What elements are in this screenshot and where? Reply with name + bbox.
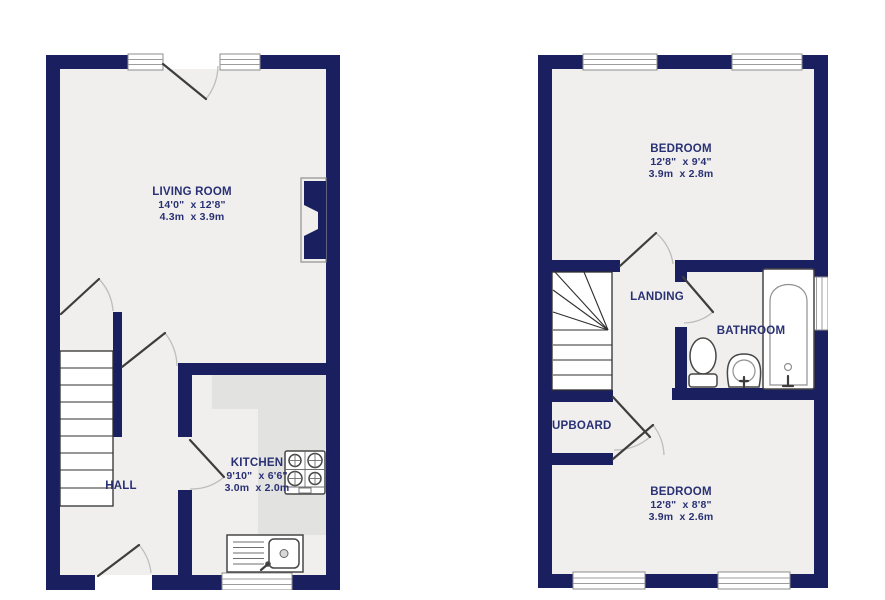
room-name: HALL <box>91 480 151 493</box>
cupboard-label: UPBOARD <box>552 420 662 433</box>
room-name: LIVING ROOM <box>107 186 277 199</box>
room-size-metric: 4.3m x 3.9m <box>107 211 277 223</box>
window <box>220 54 260 70</box>
living-room-label: LIVING ROOM 14'0" x 12'8" 4.3m x 3.9m <box>107 186 277 223</box>
bedroom-back-label: BEDROOM 12'8" x 8'8" 3.9m x 2.6m <box>596 486 766 523</box>
kitchen-sink <box>227 535 303 572</box>
window <box>732 54 802 70</box>
landing-label: LANDING <box>597 291 717 304</box>
room-name: BATHROOM <box>691 325 811 338</box>
window <box>128 54 163 70</box>
room-size-imperial: 12'8" x 9'4" <box>596 156 766 168</box>
room-name: KITCHEN <box>182 457 332 470</box>
room-name: UPBOARD <box>552 420 662 433</box>
first-floor-plan: BEDROOM 12'8" x 9'4" 3.9m x 2.8m LANDING… <box>538 50 828 590</box>
window <box>222 573 292 590</box>
room-size-imperial: 12'8" x 8'8" <box>596 499 766 511</box>
ground-floor-drawing <box>45 50 340 590</box>
bedroom-front-label: BEDROOM 12'8" x 9'4" 3.9m x 2.8m <box>596 143 766 180</box>
room-name: BEDROOM <box>596 143 766 156</box>
room-size-imperial: 14'0" x 12'8" <box>107 199 277 211</box>
kitchen-label: KITCHEN 9'10" x 6'6" 3.0m x 2.0m <box>182 457 332 494</box>
ground-floor-plan: LIVING ROOM 14'0" x 12'8" 4.3m x 3.9m KI… <box>45 50 340 590</box>
window <box>718 572 790 589</box>
floorplan-page: { "theme": { "wall_color": "#1a1f60", "l… <box>0 0 885 600</box>
bathroom-label: BATHROOM <box>691 325 811 338</box>
window <box>573 572 645 589</box>
room-name: LANDING <box>597 291 717 304</box>
staircase <box>552 272 612 390</box>
room-name: BEDROOM <box>596 486 766 499</box>
room-size-metric: 3.9m x 2.8m <box>596 168 766 180</box>
room-size-imperial: 9'10" x 6'6" <box>182 470 332 482</box>
window <box>583 54 657 70</box>
wash-basin <box>727 354 760 387</box>
hall-label: HALL <box>91 480 151 493</box>
room-size-metric: 3.9m x 2.6m <box>596 511 766 523</box>
room-size-metric: 3.0m x 2.0m <box>182 482 332 494</box>
toilet <box>689 338 717 387</box>
